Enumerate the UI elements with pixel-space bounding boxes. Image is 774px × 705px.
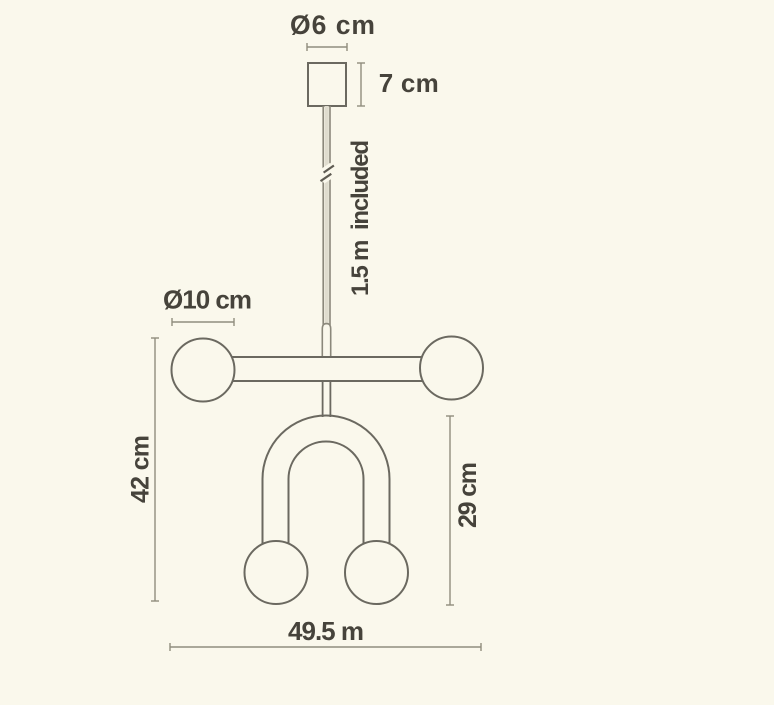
svg-text:Ø10 cm: Ø10 cm (163, 285, 252, 315)
svg-text:29 cm: 29 cm (454, 462, 482, 528)
svg-text:Ø6 cm: Ø6 cm (290, 10, 375, 40)
svg-text:49.5 m: 49.5 m (288, 616, 364, 646)
svg-text:7 cm: 7 cm (379, 68, 439, 98)
svg-text:42 cm: 42 cm (126, 435, 154, 503)
svg-text:1.5 m included: 1.5 m included (347, 140, 374, 296)
